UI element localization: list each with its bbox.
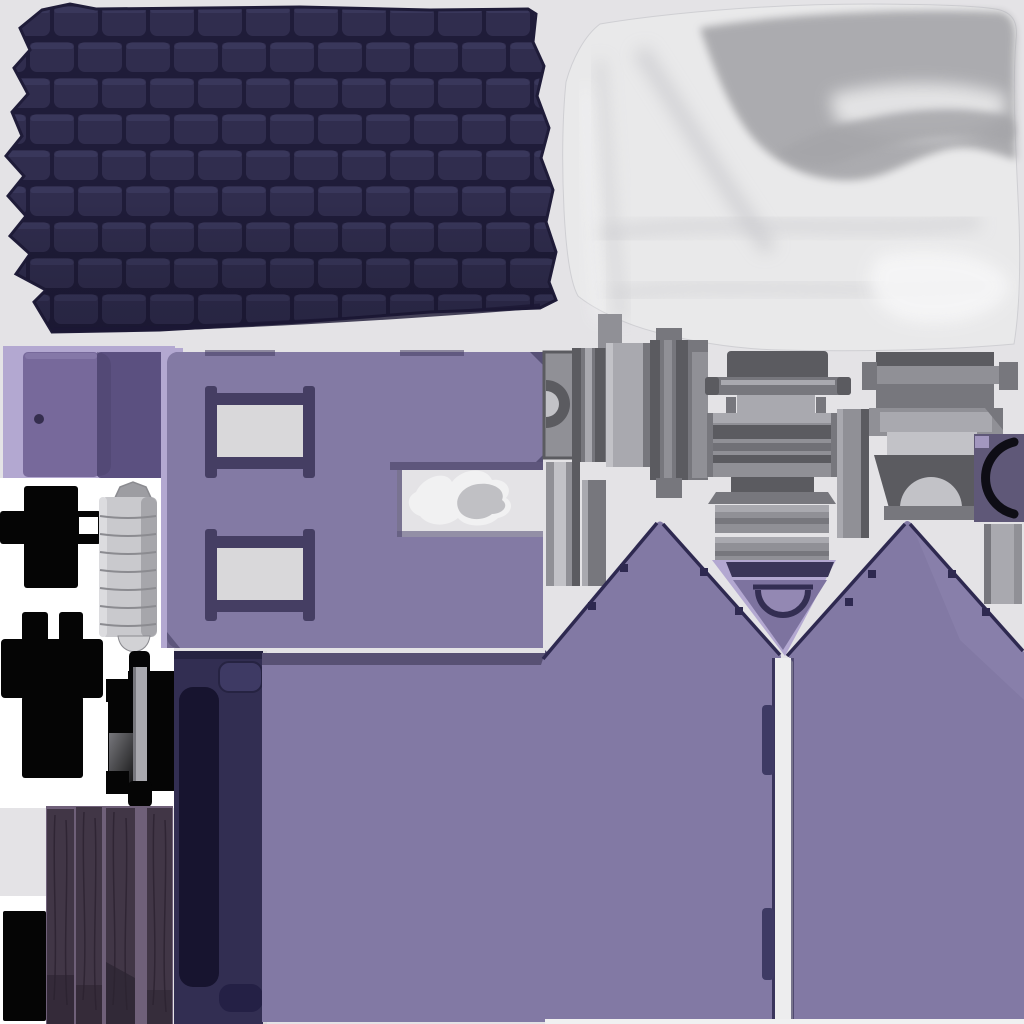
slat-line xyxy=(715,518,829,524)
band xyxy=(707,443,837,451)
hinge-tab-lower xyxy=(106,771,129,794)
pillar-plank-hi xyxy=(606,343,613,467)
mantel-top xyxy=(876,352,994,368)
roof-shading xyxy=(6,4,556,332)
slat-stack xyxy=(708,492,836,563)
gap-edge-right xyxy=(791,658,794,1024)
roof-shingle-sheet xyxy=(6,4,556,332)
window-post-left xyxy=(205,529,217,621)
fireplace-base xyxy=(884,506,981,520)
band xyxy=(707,455,837,463)
pillar-band xyxy=(676,340,688,480)
door-panel-shade xyxy=(97,352,111,476)
satin-curtain xyxy=(563,4,1020,351)
band xyxy=(707,425,837,439)
slat-hi xyxy=(715,537,829,543)
v-notch-dark-bar xyxy=(726,562,834,577)
slat-hi xyxy=(715,505,829,512)
pillar-bottom-tab xyxy=(656,478,682,498)
window-post-left xyxy=(205,386,217,478)
banded-pillar-right xyxy=(650,328,708,498)
frame-inner xyxy=(880,412,992,432)
pillar-plank-shade xyxy=(643,343,650,467)
navy-panel-slot xyxy=(179,687,219,987)
hinge-bottom-stub xyxy=(128,781,152,807)
window-cutout-2 xyxy=(205,529,315,621)
notch-sill-shadow xyxy=(397,531,543,537)
side-plank-1-hi xyxy=(554,462,566,586)
bottom-white-strip xyxy=(545,1019,1024,1024)
door-piece xyxy=(3,346,175,478)
windowed-wall xyxy=(161,348,543,648)
slat-line xyxy=(715,551,829,556)
pillar-band xyxy=(595,348,605,462)
bench-leg-right xyxy=(816,397,826,414)
gap-white-strip xyxy=(775,658,791,1024)
band-edge-left xyxy=(707,413,713,477)
arched-corner-block xyxy=(974,434,1024,522)
crossbar-highlight xyxy=(721,380,835,385)
window-sill xyxy=(205,600,315,612)
plank-1-shadow xyxy=(47,975,74,1024)
middle-plank-hi xyxy=(837,409,843,538)
window-hole xyxy=(215,403,305,459)
window-hole xyxy=(215,546,305,602)
texture-atlas-image xyxy=(0,0,1024,1024)
mantel-base xyxy=(876,384,994,408)
castle-body xyxy=(1,639,103,698)
cylinder-stack xyxy=(99,482,157,652)
mantel-mid xyxy=(866,366,1004,384)
notch-left-shadow xyxy=(397,470,402,537)
window-sill xyxy=(205,457,315,469)
notch-lintel-shadow xyxy=(390,462,543,470)
navy-door-panel xyxy=(174,651,267,1024)
hinge-tab-lower xyxy=(762,908,774,980)
door-leaf xyxy=(23,352,99,477)
wall-top-accent-2 xyxy=(400,350,464,356)
fireplace-arch xyxy=(874,455,991,520)
castle-lower xyxy=(22,696,83,778)
plank-4-shadow xyxy=(147,990,172,1024)
side-planks xyxy=(546,462,606,586)
window-lintel xyxy=(205,393,315,405)
edge-plank-left xyxy=(984,524,991,604)
edge-plank-right xyxy=(1014,524,1022,604)
mantel-hook-left xyxy=(862,362,877,390)
bench-leg-left xyxy=(726,397,736,414)
side-plank-2-hi xyxy=(582,480,588,586)
black-square-patch xyxy=(3,911,46,1021)
pillar-band xyxy=(664,340,672,480)
navy-panel-insert-bottom xyxy=(219,984,263,1012)
door-top-highlight xyxy=(25,353,97,359)
hinge-tab-upper xyxy=(762,705,774,775)
window-post-right xyxy=(303,529,315,621)
texture-atlas-page xyxy=(0,0,1024,1024)
pillar-band xyxy=(650,340,660,480)
arch-box-tab xyxy=(975,436,989,448)
wood-plank-strip xyxy=(46,806,173,1024)
mantel-hook-right xyxy=(999,362,1018,390)
crossbar-cap-left xyxy=(705,377,719,395)
pillar-band xyxy=(572,348,581,462)
middle-plank-edge xyxy=(861,409,869,538)
window-post-right xyxy=(303,386,315,478)
bench-foot-block xyxy=(731,477,814,494)
bench-crossbar xyxy=(705,377,851,395)
edge-plank xyxy=(984,524,1022,604)
wall-top-band xyxy=(262,653,545,665)
plank-2-shadow xyxy=(76,985,102,1024)
frame-sill-block xyxy=(887,432,977,456)
window-lintel xyxy=(205,536,315,548)
hinge-pin-edge xyxy=(133,667,136,793)
pillar-band xyxy=(692,352,708,478)
cross-hole xyxy=(79,517,98,534)
band-edge-right xyxy=(831,413,837,477)
band xyxy=(707,413,837,423)
cylinder-highlight xyxy=(99,497,107,637)
navy-panel-insert-top xyxy=(219,662,262,692)
slat-angled xyxy=(708,492,836,504)
pillar-band xyxy=(585,348,592,462)
wall-top-accent-1 xyxy=(205,350,275,356)
window-cutout-1 xyxy=(205,386,315,478)
navy-panel-top-edge xyxy=(174,651,265,659)
side-plank-1-edge xyxy=(572,462,580,586)
door-knob xyxy=(34,414,44,424)
bench-apron xyxy=(737,395,815,413)
crossbar-cap-right xyxy=(837,377,851,395)
